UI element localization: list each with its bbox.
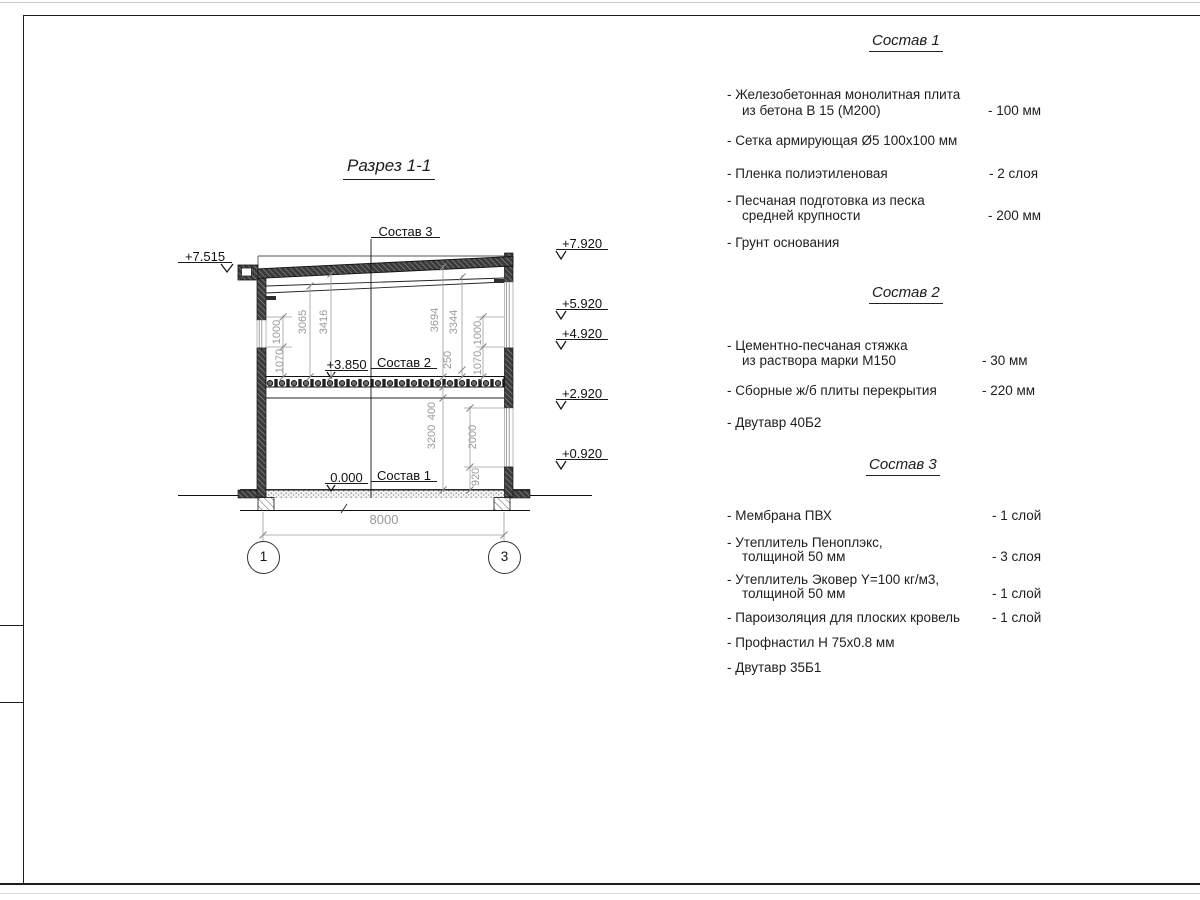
spec1-item1-line2: из бетона В 15 (М200) — [742, 103, 881, 118]
spec3-item3-value: - 1 слой — [992, 586, 1041, 601]
spec3-item4-line1: - Пароизоляция для плоских кровель — [727, 610, 960, 625]
spec1-item4-value: - 200 мм — [988, 208, 1041, 223]
elevation-floor1: 0.000 — [325, 470, 368, 484]
spec1-item4-line1: - Песчаная подготовка из песка — [727, 193, 925, 208]
spec2-item1-line1: - Цементно-песчаная стяжка — [727, 338, 908, 353]
spec3-item2-line1: - Утеплитель Пеноплэкс, — [727, 535, 883, 550]
axis-bubble-3: 3 — [488, 541, 521, 574]
spec3-item5-line1: - Профнастил Н 75х0.8 мм — [727, 635, 894, 650]
spec3-title: Состав 3 — [866, 456, 940, 476]
elevation-5920: +5.920 — [556, 296, 608, 310]
dim-2000: 2000 — [467, 425, 479, 449]
spec1-item5-line1: - Грунт основания — [727, 235, 839, 250]
dim-1000-right: 1000 — [472, 321, 484, 345]
leader-sostav3: Состав 3 — [371, 224, 440, 238]
section-title: Разрез 1-1 — [343, 156, 435, 180]
spec2-item1-value: - 30 мм — [982, 353, 1028, 368]
dim-1070-right: 1070 — [472, 351, 484, 375]
elevation-floor2: +3.850 — [325, 357, 368, 371]
leader-sostav2: Состав 2 — [371, 355, 437, 369]
dim-1000-left: 1000 — [271, 320, 283, 344]
spec2-title: Состав 2 — [869, 284, 943, 304]
dim-3200: 3200 — [426, 425, 438, 449]
axis-bubble-1: 1 — [247, 541, 280, 574]
dim-3694: 3694 — [429, 308, 441, 332]
spec3-item3-line2: толщиной 50 мм — [742, 586, 845, 601]
elevation-2920: +2.920 — [556, 386, 608, 400]
elevation-4920: +4.920 — [556, 326, 608, 340]
spec2-item1-line2: из раствора марки М150 — [742, 353, 896, 368]
spec1-item1-line1: - Железобетонная монолитная плита — [727, 87, 960, 102]
spec3-item4-value: - 1 слой — [992, 610, 1041, 625]
spec1-item1-value: - 100 мм — [988, 103, 1041, 118]
spec3-item1-line1: - Мембрана ПВХ — [727, 508, 832, 523]
leader-sostav1: Состав 1 — [371, 468, 437, 482]
dim-400: 400 — [426, 402, 438, 420]
spec1-item2-line1: - Сетка армирующая Ø5 100х100 мм — [727, 133, 957, 148]
dim-3416: 3416 — [318, 310, 330, 334]
spec1-item3-line1: - Пленка полиэтиленовая — [727, 166, 888, 181]
dim-920: 920 — [470, 468, 482, 486]
elevation-0920: +0.920 — [556, 446, 608, 460]
spec2-item2-line1: - Сборные ж/б плиты перекрытия — [727, 383, 937, 398]
spec1-item3-value: - 2 слоя — [989, 166, 1038, 181]
elevation-roof: +7.920 — [556, 236, 608, 250]
spec3-item1-value: - 1 слой — [992, 508, 1041, 523]
spec2-item3-line1: - Двутавр 40Б2 — [727, 415, 821, 430]
spec3-item6-line1: - Двутавр 35Б1 — [727, 660, 821, 675]
elevation-eaves: +7.515 — [178, 249, 232, 263]
spec2-item2-value: - 220 мм — [982, 383, 1035, 398]
spec1-title: Состав 1 — [869, 32, 943, 52]
drawing-sheet: Разрез 1-1 Состав 3 Состав 2 Состав 1 +7… — [0, 0, 1200, 900]
dim-250: 250 — [442, 351, 454, 369]
spec3-item2-value: - 3 слоя — [992, 549, 1041, 564]
dim-span-8000: 8000 — [360, 512, 408, 527]
spec1-item4-line2: средней крупности — [742, 208, 860, 223]
dim-1070-left: 1070 — [274, 349, 286, 373]
dim-3344: 3344 — [448, 310, 460, 334]
dim-3065: 3065 — [297, 310, 309, 334]
spec3-item2-line2: толщиной 50 мм — [742, 549, 845, 564]
spec3-item3-line1: - Утеплитель Эковер Y=100 кг/м3, — [727, 572, 939, 587]
